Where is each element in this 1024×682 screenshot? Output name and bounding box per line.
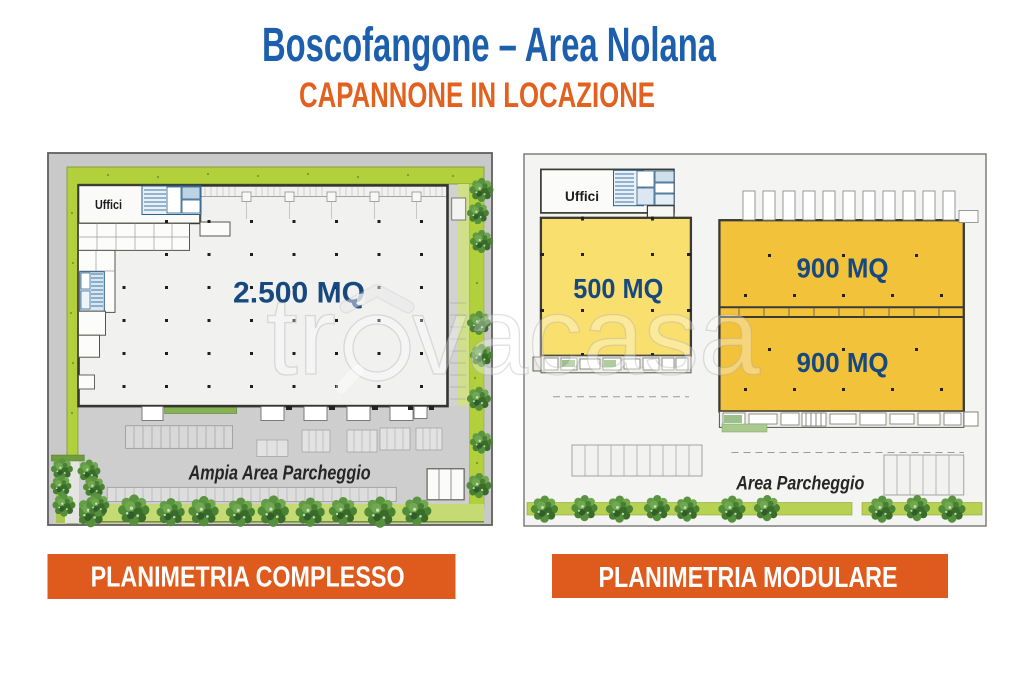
svg-text:CAPANNONE IN LOCAZIONE: CAPANNONE IN LOCAZIONE	[299, 76, 655, 115]
svg-text:900 MQ: 900 MQ	[797, 347, 889, 378]
svg-text:vacasa: vacasa	[412, 275, 761, 398]
svg-text:tr: tr	[266, 275, 336, 398]
svg-text:900 MQ: 900 MQ	[797, 253, 889, 284]
svg-text:PLANIMETRIA MODULARE: PLANIMETRIA MODULARE	[599, 562, 898, 594]
svg-text:Uffici: Uffici	[95, 198, 122, 212]
svg-text:PLANIMETRIA COMPLESSO: PLANIMETRIA COMPLESSO	[91, 562, 405, 594]
svg-text:Uffici: Uffici	[565, 188, 599, 204]
svg-text:Boscofangone – Area Nolana: Boscofangone – Area Nolana	[262, 19, 716, 72]
svg-text:Ampia Area Parcheggio: Ampia Area Parcheggio	[188, 463, 371, 485]
svg-text:Area Parcheggio: Area Parcheggio	[735, 474, 864, 495]
